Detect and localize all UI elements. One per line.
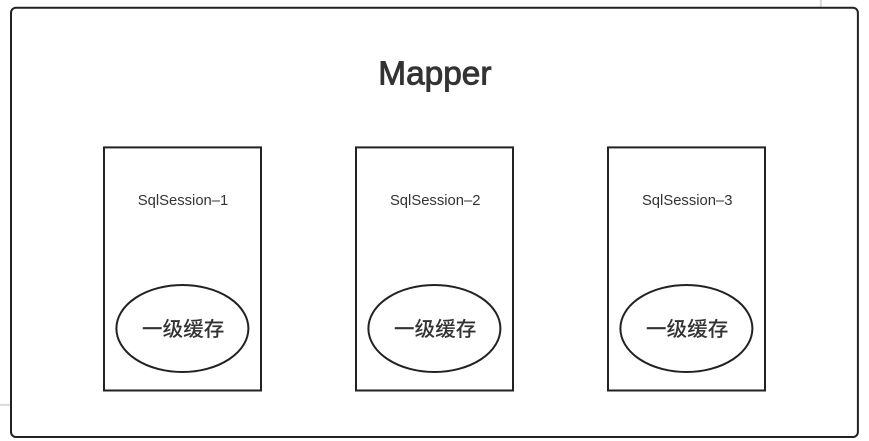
- svg-text:SqlSession–2: SqlSession–2: [390, 193, 481, 209]
- svg-text:Mapper: Mapper: [378, 56, 491, 93]
- svg-text:SqlSession–1: SqlSession–1: [138, 193, 229, 209]
- svg-text:SqlSession–3: SqlSession–3: [642, 193, 733, 209]
